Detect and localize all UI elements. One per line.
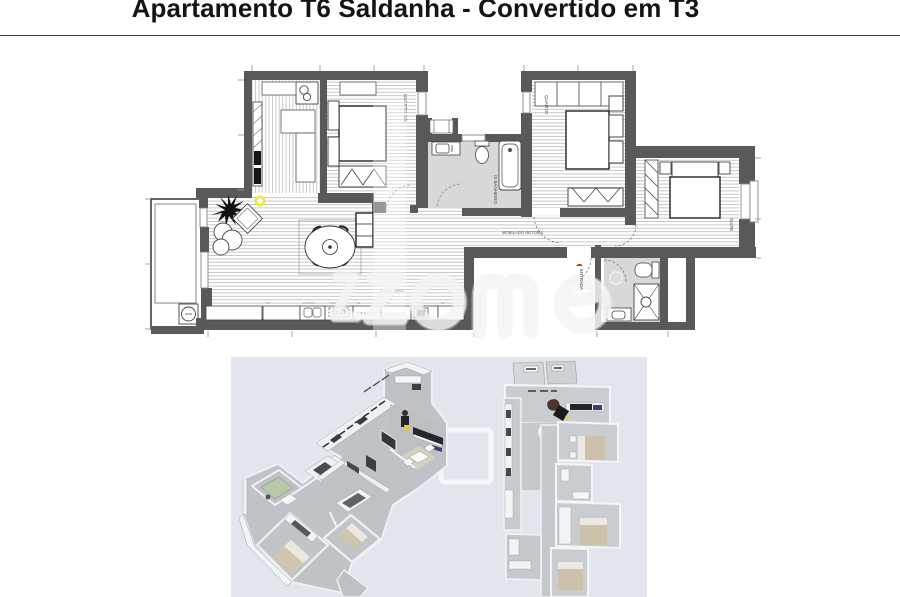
- svg-text:60: 60: [357, 301, 361, 305]
- svg-text:R: R: [613, 275, 619, 284]
- svg-text:QUARTO: QUARTO: [544, 95, 549, 115]
- svg-text:60: 60: [441, 301, 445, 305]
- svg-text:60: 60: [266, 301, 270, 305]
- svg-text:ENTRADA: ENTRADA: [579, 269, 584, 290]
- svg-text:L.LOICA: L.LOICA: [303, 301, 315, 305]
- svg-text:IS BANHEIRO: IS BANHEIRO: [493, 175, 498, 205]
- svg-text:MOBILADO RETOMA: MOBILADO RETOMA: [502, 230, 543, 235]
- svg-text:SUITE: SUITE: [729, 218, 734, 231]
